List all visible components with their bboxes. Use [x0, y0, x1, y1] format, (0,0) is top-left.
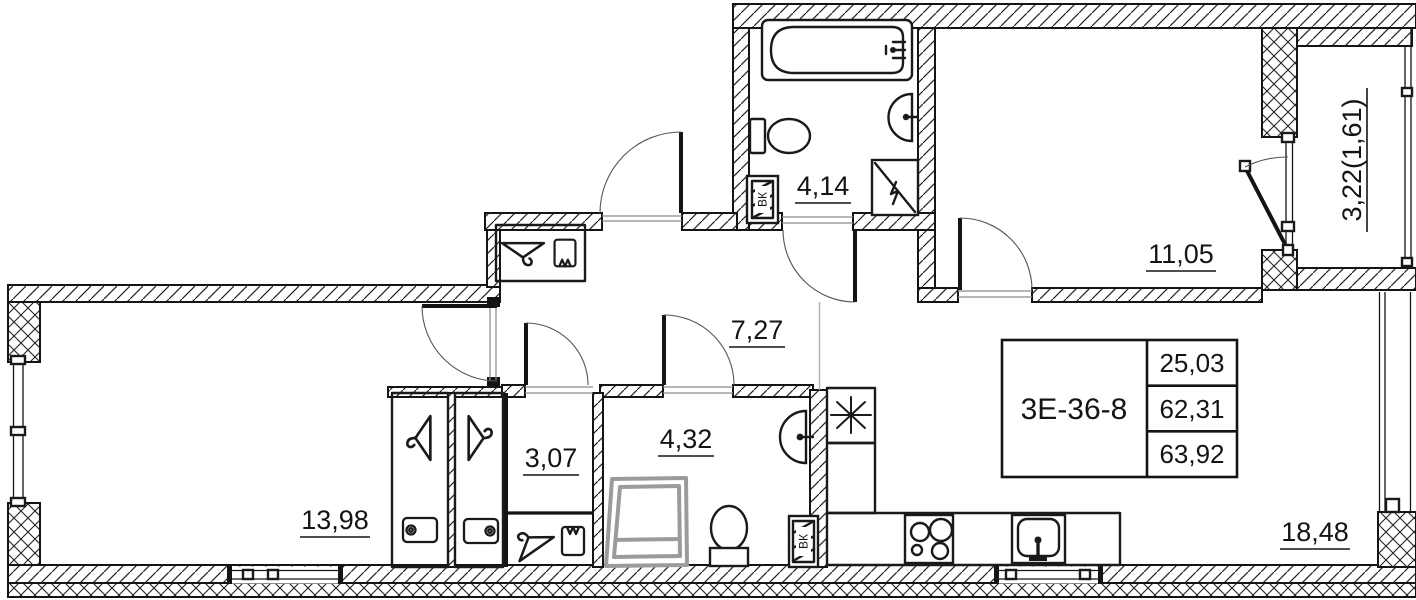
stove-icon [905, 515, 953, 563]
shower-icon [606, 478, 687, 566]
label-bedroom: 11,05 [1148, 239, 1214, 269]
balcony-door-arc [1245, 157, 1288, 167]
stamp-table: 3Е-36-8 25,03 62,31 63,92 [1002, 340, 1237, 477]
stamp-unit-label: 3Е-36-8 [1021, 393, 1128, 426]
stamp-value-area: 62,31 [1159, 394, 1224, 424]
bathtub-icon [762, 20, 912, 80]
wall-balcony-bottom [1297, 268, 1416, 290]
stamp-value-living: 25,03 [1159, 348, 1224, 378]
wall-bottom-outer [8, 583, 1416, 597]
shaft-top: ВК [747, 176, 778, 223]
label-hallway: 7,27 [731, 315, 784, 345]
storage-room [507, 513, 593, 561]
box-icon [562, 527, 584, 555]
shaft-label-top: ВК [756, 192, 770, 207]
toilet-icon [710, 506, 748, 566]
room-labels: 4,14 11,05 3,22(1,61) 7,27 13,98 3,07 4,… [300, 88, 1367, 549]
walls [8, 4, 1416, 597]
windows [11, 28, 1412, 584]
shaft-bottom: ВК [789, 516, 818, 567]
door-bedroom [958, 218, 1032, 297]
door-bathroom-top [782, 217, 855, 302]
door-bathroom-bottom [663, 315, 734, 393]
wall-left-outer-top [8, 302, 40, 362]
window-bottom-left [227, 566, 343, 584]
kitchen-sink-icon [1012, 515, 1065, 563]
window-balcony-glazing [1402, 28, 1412, 268]
label-balcony: 3,22(1,61) [1337, 98, 1367, 221]
window-left [11, 356, 25, 506]
balcony-door-window [1240, 133, 1294, 255]
wall-bath2-top-l [600, 385, 663, 397]
doors [422, 132, 1032, 393]
wall-niche-side [487, 230, 500, 287]
kitchen-counter-left [827, 443, 875, 513]
shower-tray-icon [872, 160, 918, 215]
sink-icon [780, 411, 813, 463]
wall-hall-top-r [682, 213, 737, 230]
closets [392, 393, 503, 567]
hanger-icon [407, 416, 430, 460]
door-livingroom [422, 306, 497, 381]
wall-bath2-top-r [733, 385, 813, 397]
basket-icon [464, 519, 498, 543]
floor-plan-drawing: ВК [0, 0, 1416, 600]
wall-bedroom-bottom-l [918, 288, 958, 302]
wall-left-outer-bottom [8, 503, 40, 567]
hallway-niche [496, 225, 585, 281]
door-storage [525, 323, 593, 393]
wall-bottom-inner [8, 565, 1416, 583]
balcony-door-leaf [1245, 167, 1288, 250]
toilet-icon [750, 119, 810, 153]
closet-2 [455, 393, 503, 567]
hanger-icon [502, 243, 544, 265]
wall-bath-bedroom [918, 28, 935, 290]
label-storage: 3,07 [525, 443, 578, 473]
wall-balcony-top [1285, 28, 1412, 46]
wall-balcony-sep-top [1262, 28, 1297, 137]
wall-right-outer-bottom [1378, 512, 1416, 567]
kitchen-counter-bottom [827, 513, 1120, 565]
label-kitchen-living: 18,48 [1281, 517, 1349, 547]
wall-storage-bath2-sep [593, 393, 603, 567]
hanger-icon [507, 519, 554, 561]
stamp-value-total: 63,92 [1159, 439, 1224, 469]
box-icon [555, 240, 576, 267]
window-right-kitchen [1380, 292, 1411, 512]
label-livingroom: 13,98 [301, 505, 369, 535]
label-bathroom-top: 4,14 [797, 171, 850, 201]
label-bathroom-bottom: 4,32 [660, 424, 713, 454]
window-bottom-kitchen [994, 566, 1103, 584]
floor-plan: ВК [0, 0, 1416, 600]
shaft-label-bottom: ВК [797, 534, 811, 549]
wall-bedroom-bottom-r [1032, 288, 1262, 302]
wall-livingroom-top [8, 285, 500, 302]
vent-icon [827, 388, 875, 443]
sink-icon [889, 94, 918, 141]
basket-icon [403, 518, 437, 542]
hanger-icon [469, 416, 492, 460]
entrance-door [600, 132, 682, 221]
